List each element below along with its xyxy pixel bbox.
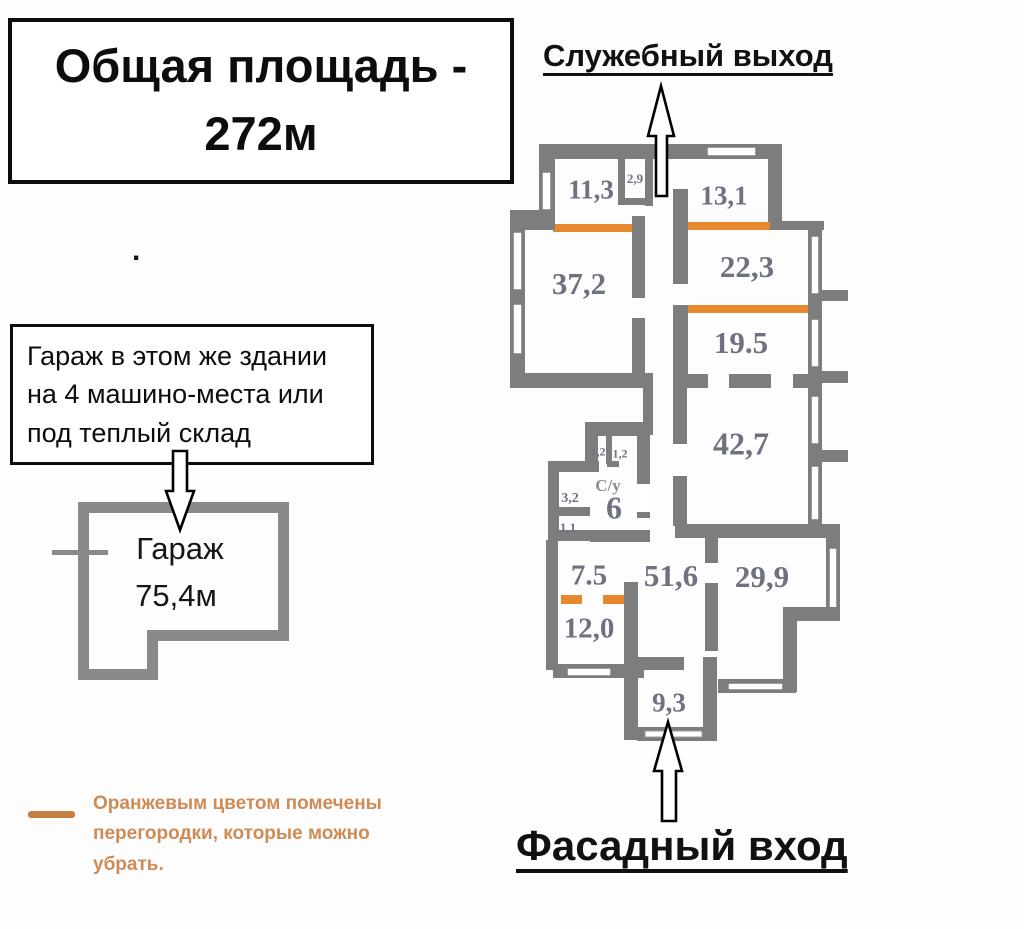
window [829, 548, 837, 608]
room-label-2-9: 2,9 [627, 171, 643, 187]
room-label-3-2: 3,2 [561, 491, 579, 507]
room-label-12-0: 12,0 [564, 613, 615, 646]
garage-arrow-icon [166, 451, 194, 530]
window [513, 304, 522, 354]
window [707, 147, 756, 156]
garage-wall [78, 669, 158, 680]
room-label-29-9: 29,9 [735, 559, 789, 595]
door-opening [637, 484, 650, 512]
room-label-wc-left: 1,2 [591, 445, 606, 460]
room-label-37-2: 37,2 [552, 266, 606, 302]
wall-segment [590, 530, 650, 542]
garage-area-label: 75,4м [135, 578, 217, 614]
wall-segment [705, 583, 718, 651]
garage-wall [278, 502, 289, 641]
wall-segment [559, 507, 590, 516]
dashed-wall-segment [729, 374, 771, 388]
window [542, 172, 551, 210]
wall-segment [546, 540, 558, 670]
legend-line3: убрать. [93, 850, 382, 880]
wall-segment [548, 461, 559, 540]
wall-segment [624, 582, 638, 740]
legend-text: Оранжевым цветом помечены перегородки, к… [93, 789, 382, 880]
removable-partition [603, 595, 627, 604]
wall-segment [673, 374, 708, 388]
wall-segment [673, 476, 687, 526]
window [728, 683, 783, 690]
balcony-divider [820, 371, 848, 383]
wall-segment [606, 436, 612, 464]
room-label-11-3: 11,3 [568, 175, 614, 206]
floor-plan-page: Общая площадь - 272м . Служебный выход Ф… [0, 0, 1024, 929]
wall-segment [510, 373, 646, 388]
wall-segment [645, 158, 653, 206]
room-label-wc-right: 1,2 [613, 447, 628, 462]
garage-wall [78, 502, 89, 680]
room-label-9-3: 9,3 [652, 688, 686, 719]
room-label-19-5: 19.5 [714, 325, 768, 361]
wall-segment [539, 144, 655, 159]
wall-segment [675, 524, 830, 538]
wall-segment [673, 388, 687, 444]
window [811, 396, 819, 444]
room-label-bathroom-area: 6 [606, 490, 622, 527]
legend-line2: перегородки, которые можно [93, 819, 382, 849]
balcony-divider [820, 290, 848, 301]
garage-wall [147, 630, 289, 641]
room-label-42-7: 42,7 [713, 426, 769, 463]
wall-segment [673, 305, 688, 375]
room-label-1-1: 1,1 [560, 520, 576, 536]
window [811, 236, 819, 294]
wall-segment [632, 216, 645, 298]
removable-partition [553, 224, 633, 232]
removable-partition [687, 305, 808, 313]
wall-segment [632, 318, 645, 374]
room-label-51-6: 51,6 [644, 558, 698, 594]
garage-wall-tick [52, 550, 108, 555]
wall-segment [618, 158, 625, 204]
wall-segment [768, 158, 782, 224]
balcony-divider [820, 450, 848, 462]
window [811, 319, 819, 367]
room-label-22-3: 22,3 [720, 249, 774, 285]
entrance-door-opening [645, 731, 702, 737]
room-label-7-5: 7.5 [571, 560, 607, 593]
room-label-13-1: 13,1 [700, 181, 747, 212]
window [567, 668, 611, 676]
window [513, 232, 522, 290]
wall-segment [673, 189, 688, 284]
removable-partition [688, 222, 770, 230]
door-stub [607, 461, 619, 467]
legend-orange-swatch [28, 811, 75, 818]
wall-segment [705, 537, 718, 563]
wall-segment [618, 198, 647, 205]
removable-partition [561, 595, 582, 604]
garage-name-label: Гараж [136, 531, 224, 567]
window [811, 466, 819, 520]
wall-segment [637, 657, 684, 670]
legend-line1: Оранжевым цветом помечены [93, 789, 382, 819]
